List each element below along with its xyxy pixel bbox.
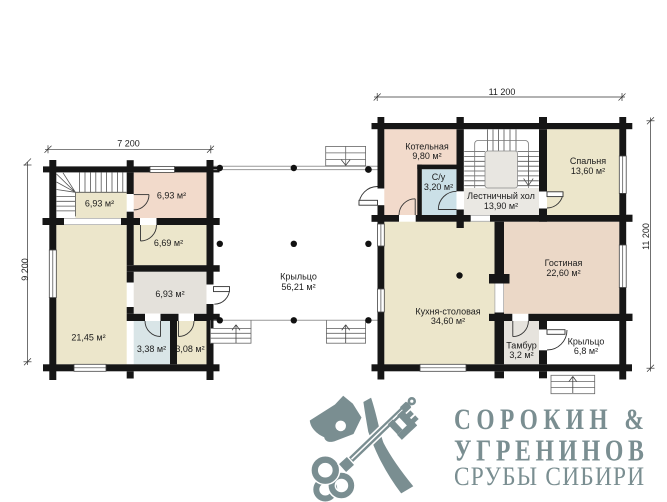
svg-text:21,45 м²: 21,45 м² bbox=[71, 333, 105, 343]
svg-text:6,69 м²: 6,69 м² bbox=[154, 238, 183, 248]
svg-text:7 200: 7 200 bbox=[117, 138, 140, 148]
svg-text:11 200: 11 200 bbox=[489, 87, 516, 97]
svg-text:3,2 м²: 3,2 м² bbox=[509, 350, 533, 360]
svg-text:6,8 м²: 6,8 м² bbox=[574, 346, 598, 356]
svg-text:Спальня: Спальня bbox=[570, 156, 606, 166]
svg-text:СРУБЫ СИБИРИ: СРУБЫ СИБИРИ bbox=[454, 463, 644, 492]
svg-text:Крыльцо: Крыльцо bbox=[280, 272, 317, 282]
svg-text:56,21 м²: 56,21 м² bbox=[281, 282, 315, 292]
svg-text:6,93 м²: 6,93 м² bbox=[155, 289, 184, 299]
svg-text:3,38 м²: 3,38 м² bbox=[137, 344, 166, 354]
svg-text:Котельная: Котельная bbox=[405, 141, 449, 151]
svg-text:9 200: 9 200 bbox=[20, 258, 30, 281]
svg-text:13,90 м²: 13,90 м² bbox=[484, 201, 518, 211]
svg-text:11 200: 11 200 bbox=[641, 223, 651, 250]
svg-text:3,20 м²: 3,20 м² bbox=[424, 182, 453, 192]
svg-text:34,60 м²: 34,60 м² bbox=[431, 316, 465, 326]
svg-text:Гостиная: Гостиная bbox=[545, 258, 583, 268]
svg-text:Кухня-столовая: Кухня-столовая bbox=[415, 307, 480, 317]
svg-text:С/у: С/у bbox=[432, 172, 446, 182]
svg-text:13,60 м²: 13,60 м² bbox=[571, 166, 605, 176]
svg-text:3,08 м²: 3,08 м² bbox=[175, 344, 204, 354]
svg-text:6,93 м²: 6,93 м² bbox=[85, 199, 114, 209]
svg-text:Тамбур: Тамбур bbox=[506, 340, 537, 350]
svg-text:9,80 м²: 9,80 м² bbox=[412, 151, 441, 161]
svg-text:6,93 м²: 6,93 м² bbox=[157, 191, 186, 201]
svg-text:22,60 м²: 22,60 м² bbox=[546, 268, 580, 278]
svg-text:СОРОКИН &: СОРОКИН & bbox=[454, 402, 644, 435]
svg-text:Лестничный хол: Лестничный хол bbox=[467, 191, 535, 201]
